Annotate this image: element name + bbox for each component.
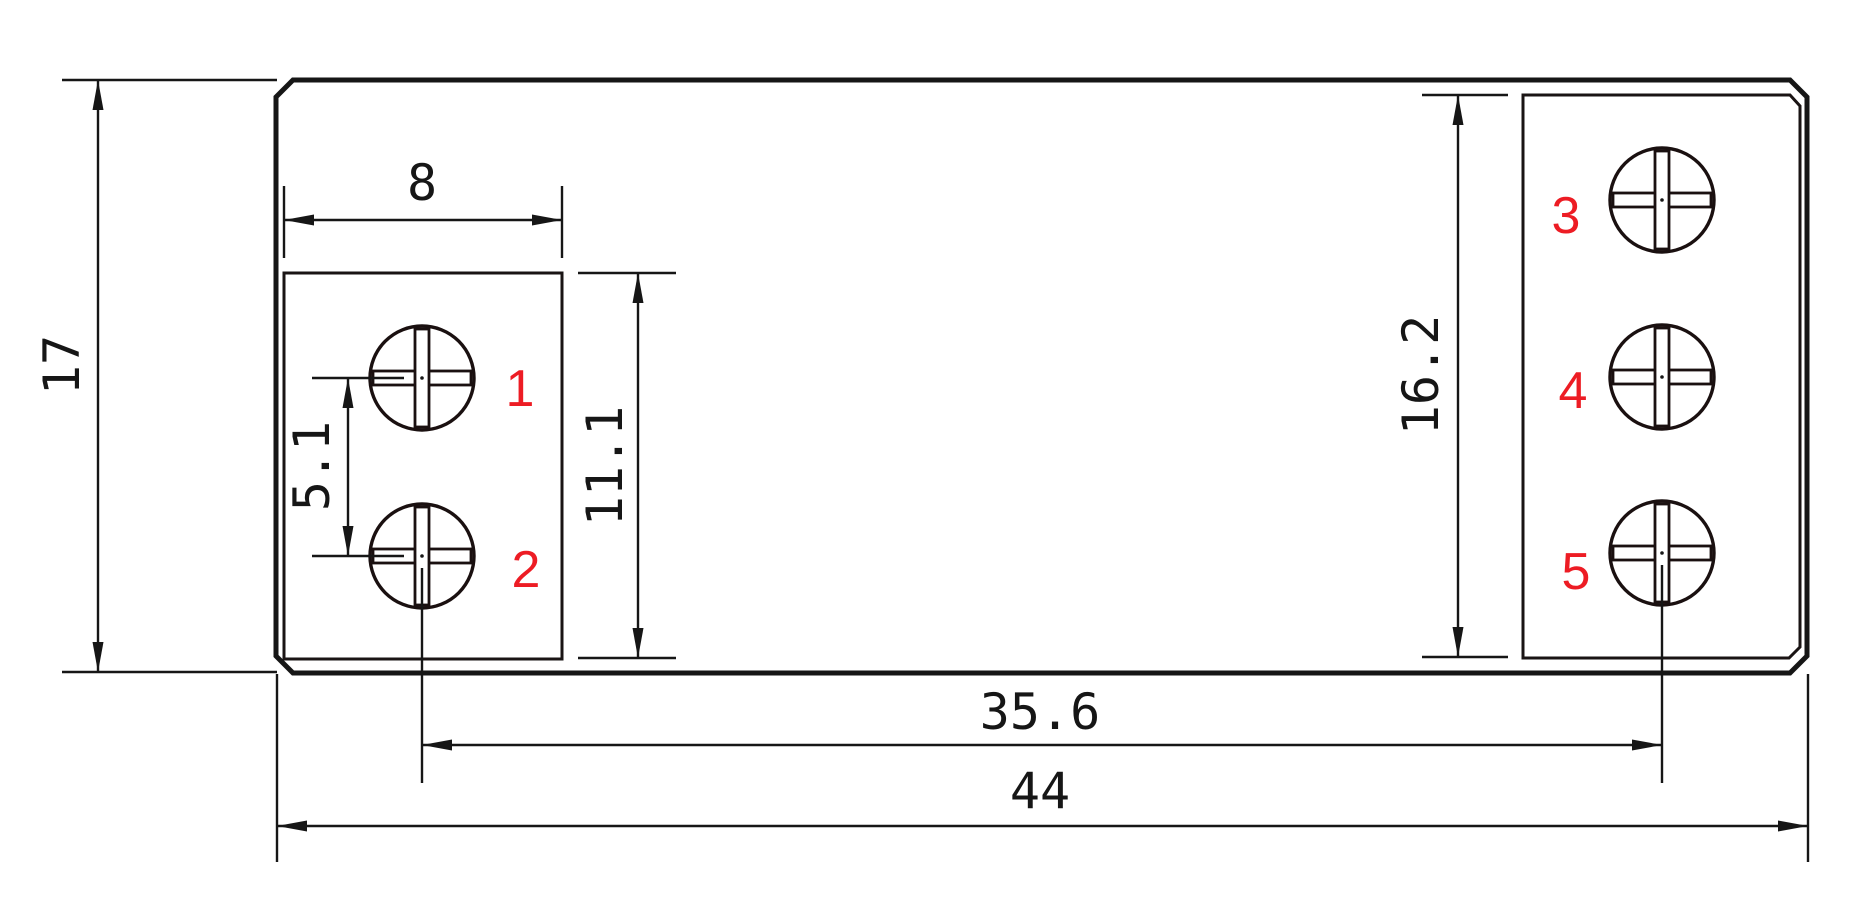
terminal-label-1: 1 — [506, 360, 535, 418]
arrowhead-left — [284, 215, 314, 226]
screw-center-mark — [420, 554, 424, 558]
terminal-label-4: 4 — [1559, 362, 1588, 420]
dimension-screw-span: 35.6 — [422, 683, 1662, 751]
technical-drawing: 17 8 5.1 11.1 16.2 35.6 — [0, 0, 1866, 901]
terminal-label-5: 5 — [1562, 543, 1591, 601]
dimension-overall-height: 17 — [33, 80, 277, 672]
arrowhead-right — [1632, 740, 1662, 751]
terminal-label-2: 2 — [512, 541, 541, 599]
screw-terminal-3 — [1610, 148, 1714, 252]
screw-center-mark — [1660, 375, 1664, 379]
dimension-screw-pitch: 5.1 — [283, 378, 354, 556]
arrowhead-down — [633, 628, 644, 658]
arrowhead-up — [93, 80, 104, 110]
dimension-value: 44 — [1010, 762, 1070, 820]
arrowhead-up — [1453, 95, 1464, 125]
screw-center-mark — [420, 376, 424, 380]
arrowhead-up — [343, 378, 354, 408]
dimension-value: 11.1 — [576, 406, 634, 526]
arrowhead-left — [277, 821, 307, 832]
dimension-value: 35.6 — [980, 683, 1100, 741]
arrowhead-left — [422, 740, 452, 751]
screw-center-mark — [1660, 198, 1664, 202]
dimension-left-block-height: 11.1 — [576, 273, 676, 658]
arrowhead-right — [1778, 821, 1808, 832]
arrowhead-down — [1453, 627, 1464, 657]
screw-center-mark — [1660, 551, 1664, 555]
dimension-value: 8 — [407, 154, 437, 212]
dimension-value: 17 — [33, 335, 91, 395]
arrowhead-right — [532, 215, 562, 226]
dimension-right-block-height: 16.2 — [1392, 95, 1508, 657]
arrowhead-down — [343, 526, 354, 556]
arrowhead-down — [93, 642, 104, 672]
dimension-value: 5.1 — [283, 421, 341, 511]
dimension-left-block-width: 8 — [284, 154, 562, 258]
dimension-value: 16.2 — [1392, 315, 1450, 435]
arrowhead-up — [633, 273, 644, 303]
screw-terminal-4 — [1610, 325, 1714, 429]
terminal-label-3: 3 — [1552, 187, 1581, 245]
